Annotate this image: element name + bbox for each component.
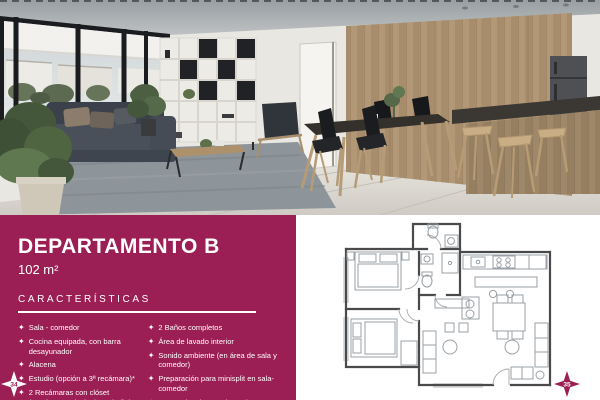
page-number-right: 35 [552,369,582,399]
diamond-bullet-icon: ✦ [148,374,155,384]
ceiling-light [513,5,519,8]
feature-item: ✦Alacena [18,360,139,370]
perforated-edge [0,0,600,2]
diamond-bullet-icon: ✦ [148,337,155,347]
features-list: ✦Sala - comedor ✦Cocina equipada, con ba… [18,323,278,400]
diamond-bullet-icon: ✦ [18,337,25,347]
feature-item: ✦Área de lavado interior [148,337,278,347]
diamond-bullet-icon: ✦ [148,323,155,333]
feature-item: ✦Preparación para minisplit en sala-come… [148,374,278,394]
apartment-title: DEPARTAMENTO B [18,236,278,257]
feature-item: ✦Sala - comedor [18,323,139,333]
feature-item: ✦2 Recámaras con clóset (Recámara princi… [18,388,139,400]
info-panel: DEPARTAMENTO B 102 m² CARACTERÍSTICAS ✦S… [0,215,296,400]
ceiling-light [462,7,468,10]
svg-text:35: 35 [563,381,571,388]
features-column-right: ✦2 Baños completos ✦Área de lavado inter… [148,323,278,400]
features-column-left: ✦Sala - comedor ✦Cocina equipada, con ba… [18,323,139,400]
svg-text:34: 34 [10,381,18,388]
page-number-left: 34 [0,369,29,399]
apartment-area: 102 m² [18,262,278,277]
diamond-bullet-icon: ✦ [18,323,25,333]
ceiling-light [563,4,569,7]
feature-item: ✦2 Baños completos [148,323,278,333]
diamond-bullet-icon: ✦ [148,351,155,361]
floor-plan [343,219,555,391]
section-title: CARACTERÍSTICAS [18,294,256,313]
brochure-page: DEPARTAMENTO B 102 m² CARACTERÍSTICAS ✦S… [0,0,600,400]
feature-item: ✦Sonido ambiente (en área de sala y come… [148,351,278,371]
feature-item: ✦Cocina equipada, con barra desayunador [18,337,139,357]
feature-item: ✦Estudio (opción a 3ª recámara)* [18,374,139,384]
apartment-photo-illustration [0,0,600,215]
apartment-photo [0,0,600,215]
